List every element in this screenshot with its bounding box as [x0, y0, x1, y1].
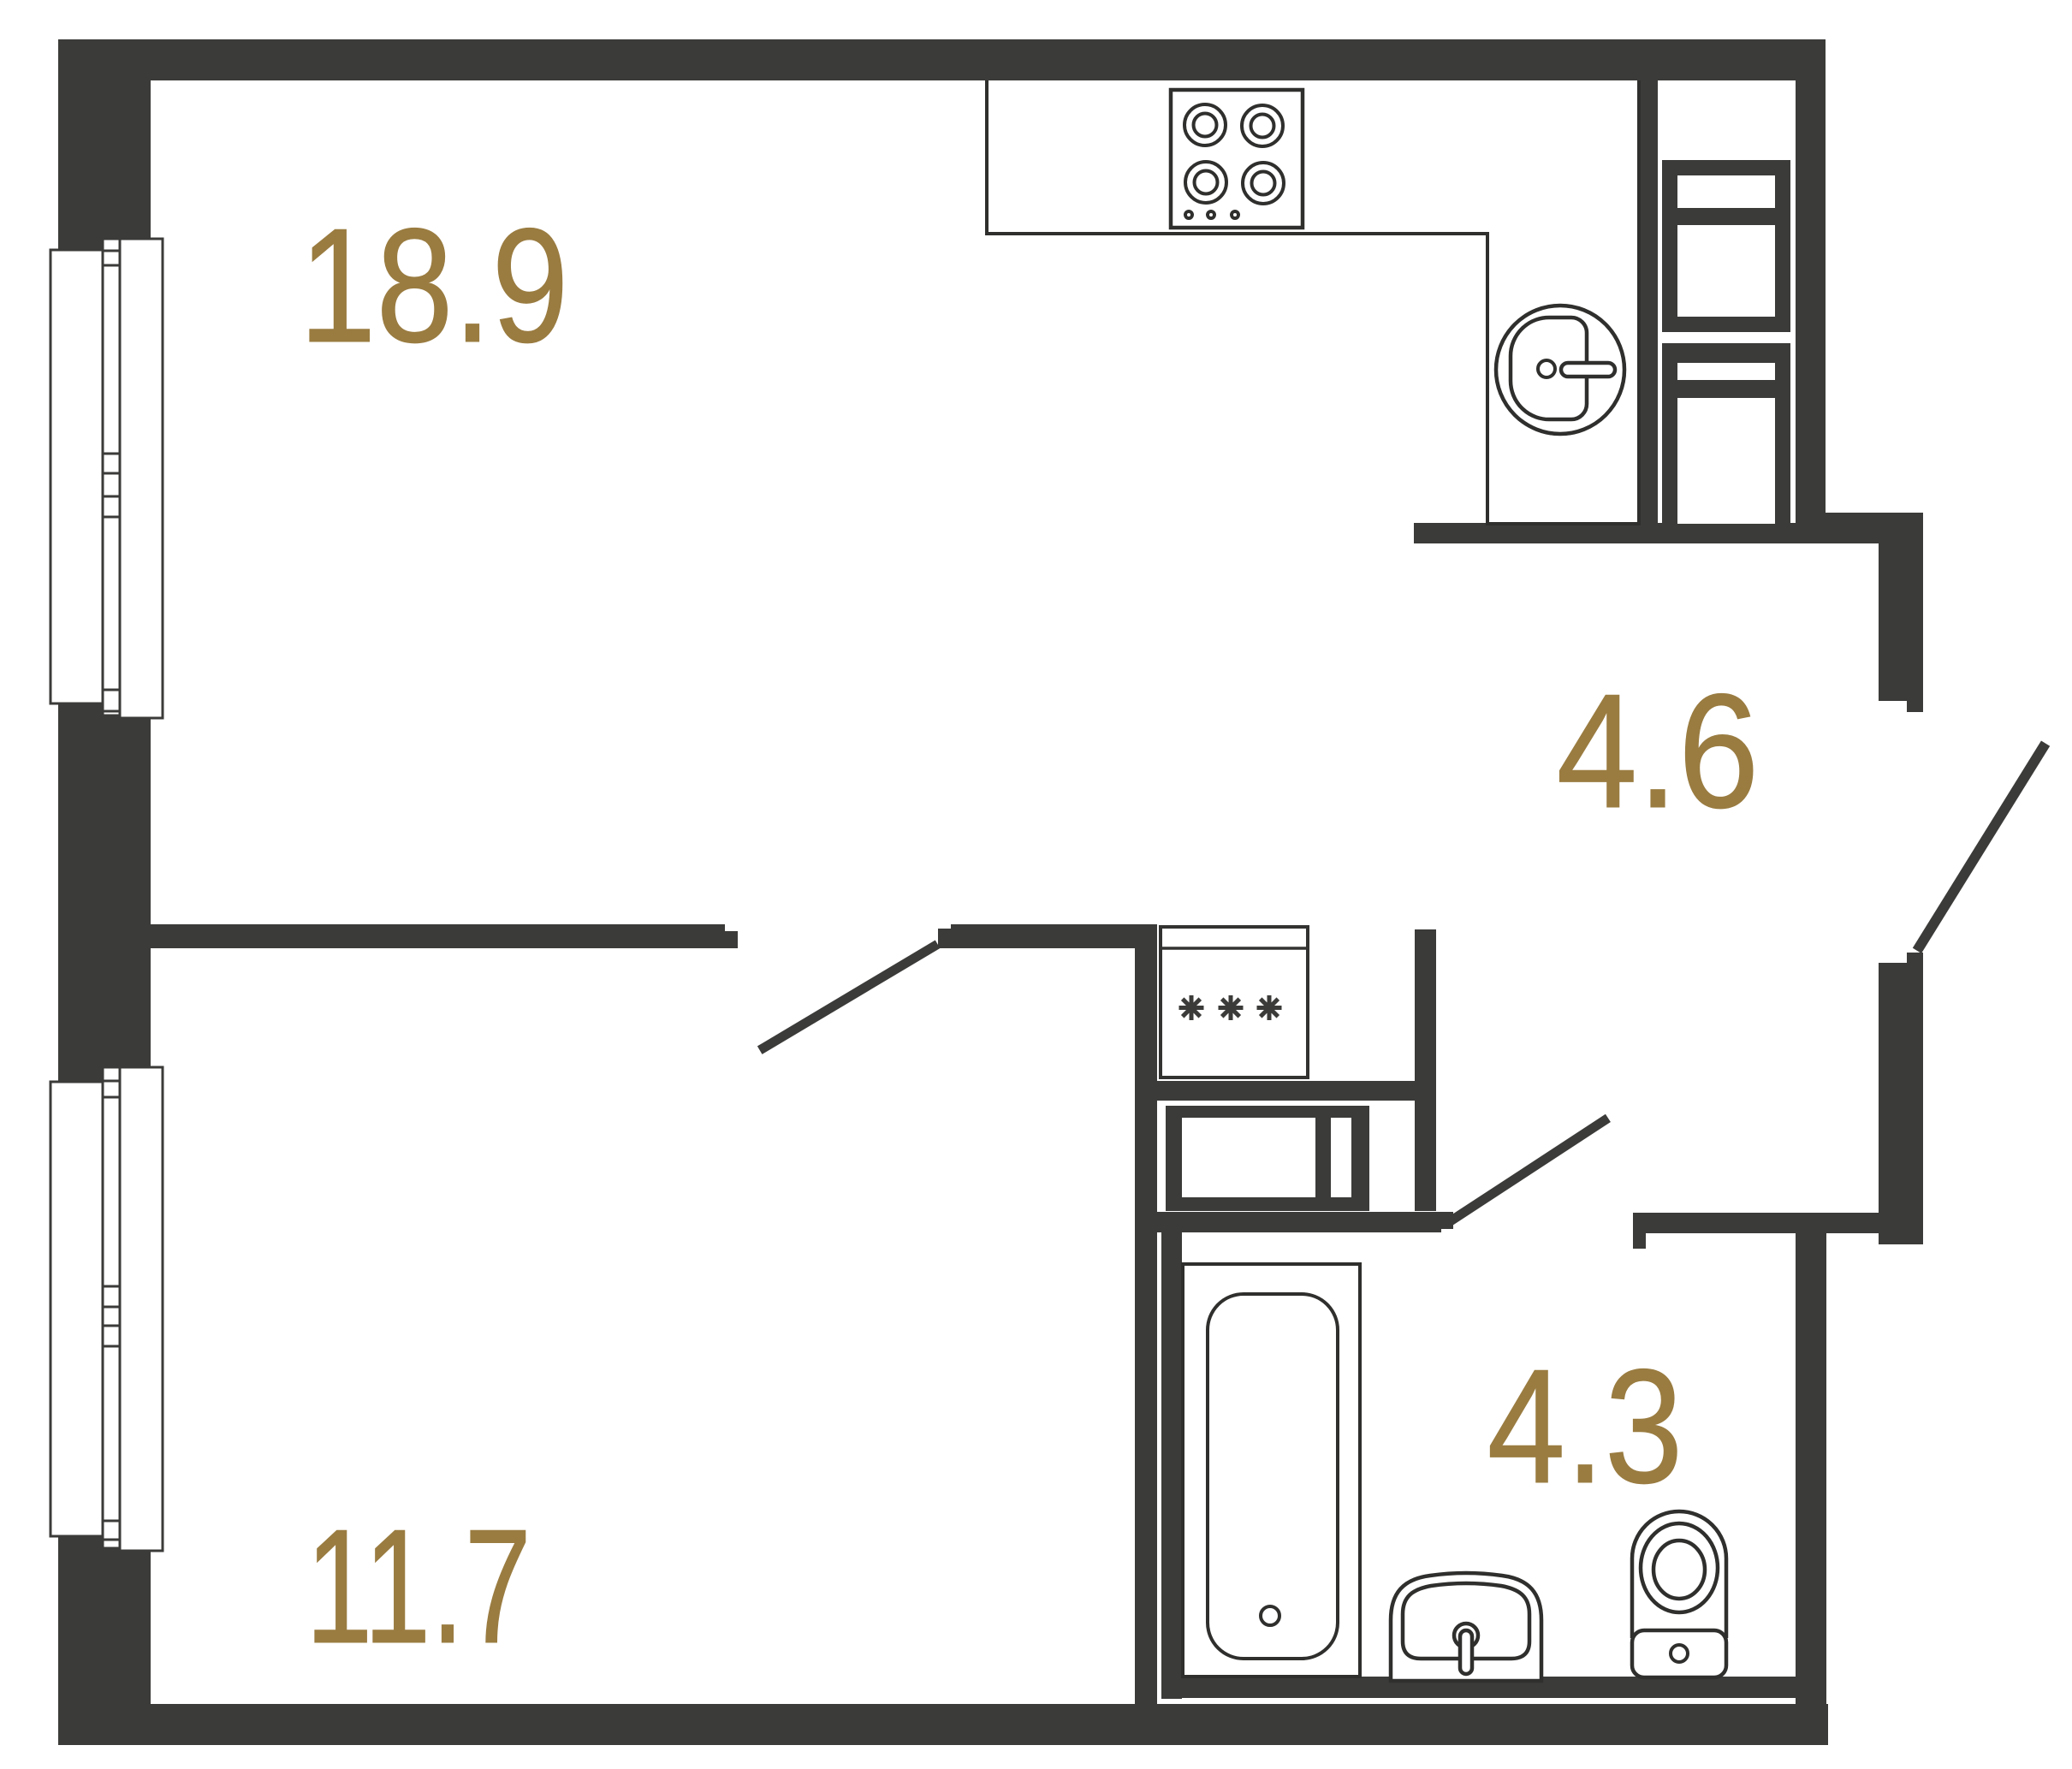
svg-text:11.7: 11.7	[306, 1496, 531, 1677]
svg-text:18.9: 18.9	[300, 195, 569, 377]
svg-text:4.6: 4.6	[1557, 661, 1760, 842]
svg-text:4.3: 4.3	[1487, 1336, 1683, 1517]
